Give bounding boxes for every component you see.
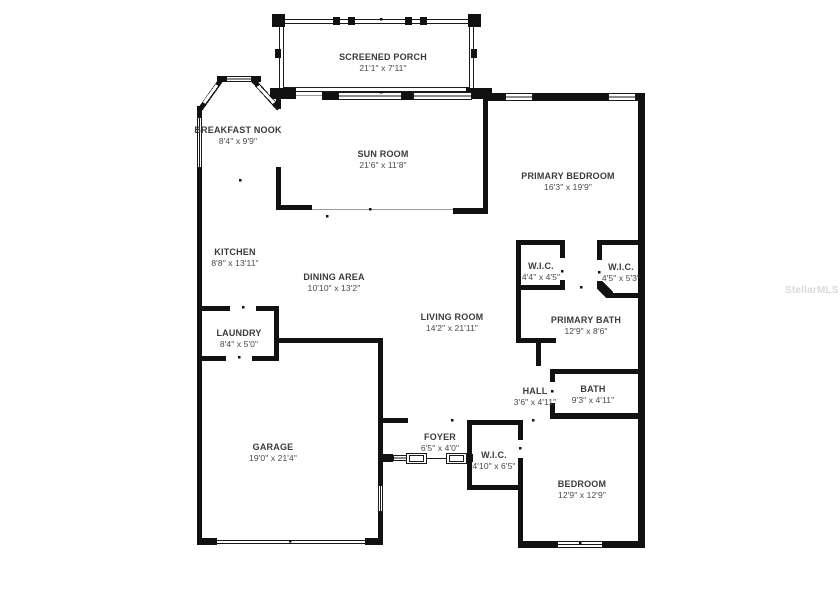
room-label-primary-bath: PRIMARY BATH 12'9" x 8'6" bbox=[551, 315, 621, 336]
room-dims: 21'1" x 7'11" bbox=[339, 63, 427, 74]
room-dims: 16'3" x 19'9" bbox=[521, 182, 615, 193]
entry-door-symbols bbox=[407, 454, 467, 464]
room-label-living-room: LIVING ROOM 14'2" x 21'11" bbox=[421, 312, 484, 333]
room-dims: 12'9" x 12'9" bbox=[558, 490, 606, 501]
room-label-hall: HALL 3'6" x 4'11" bbox=[514, 386, 556, 407]
room-dims: 14'2" x 21'11" bbox=[421, 323, 484, 334]
room-name: BATH bbox=[572, 384, 614, 395]
room-name: BREAKFAST NOOK bbox=[194, 125, 281, 136]
room-name: DINING AREA bbox=[303, 272, 364, 283]
room-name: LAUNDRY bbox=[216, 328, 261, 339]
room-label-laundry: LAUNDRY 8'4" x 5'0" bbox=[216, 328, 261, 349]
room-label-foyer: FOYER 6'5" x 4'0" bbox=[421, 432, 459, 453]
room-dims: 6'5" x 4'0" bbox=[421, 443, 459, 454]
room-dims: 19'0" x 21'4" bbox=[249, 453, 297, 464]
room-dims: 4'5" x 5'3" bbox=[602, 273, 640, 284]
room-dims: 8'8" x 13'11" bbox=[211, 258, 258, 269]
room-name: W.I.C. bbox=[602, 262, 640, 273]
room-label-wic-primary-1: W.I.C. 4'4" x 4'5" bbox=[522, 261, 560, 282]
room-label-kitchen: KITCHEN 8'8" x 13'11" bbox=[211, 247, 258, 268]
room-name: PRIMARY BEDROOM bbox=[521, 171, 615, 182]
windows bbox=[198, 77, 637, 548]
room-label-primary-bedroom: PRIMARY BEDROOM 16'3" x 19'9" bbox=[521, 171, 615, 192]
room-dims: 10'10" x 13'2" bbox=[303, 283, 364, 294]
room-name: LIVING ROOM bbox=[421, 312, 484, 323]
room-dims: 12'9" x 8'6" bbox=[551, 326, 621, 337]
room-label-dining-area: DINING AREA 10'10" x 13'2" bbox=[303, 272, 364, 293]
floorplan-page: SCREENED PORCH 21'1" x 7'11" BREAKFAST N… bbox=[0, 0, 840, 591]
room-dims: 4'4" x 4'5" bbox=[522, 272, 560, 283]
room-dims: 4'10" x 6'5" bbox=[472, 461, 515, 472]
room-label-screened-porch: SCREENED PORCH 21'1" x 7'11" bbox=[339, 52, 427, 73]
room-label-bedroom: BEDROOM 12'9" x 12'9" bbox=[558, 479, 606, 500]
room-dims: 8'4" x 5'0" bbox=[216, 339, 261, 350]
room-label-breakfast-nook: BREAKFAST NOOK 8'4" x 9'9" bbox=[194, 125, 281, 146]
watermark-text: StellarMLS bbox=[785, 285, 839, 296]
room-dims: 21'6" x 11'8" bbox=[357, 160, 408, 171]
room-name: PRIMARY BATH bbox=[551, 315, 621, 326]
room-label-garage: GARAGE 19'0" x 21'4" bbox=[249, 442, 297, 463]
room-label-wic-primary-2: W.I.C. 4'5" x 5'3" bbox=[602, 262, 640, 283]
floorplan-walls bbox=[0, 0, 840, 591]
room-name: W.I.C. bbox=[472, 450, 515, 461]
room-label-wic-bedroom: W.I.C. 4'10" x 6'5" bbox=[472, 450, 515, 471]
room-name: KITCHEN bbox=[211, 247, 258, 258]
room-dims: 9'3" x 4'11" bbox=[572, 395, 614, 406]
room-name: W.I.C. bbox=[522, 261, 560, 272]
room-name: GARAGE bbox=[249, 442, 297, 453]
room-name: HALL bbox=[514, 386, 556, 397]
room-name: SUN ROOM bbox=[357, 149, 408, 160]
room-label-sun-room: SUN ROOM 21'6" x 11'8" bbox=[357, 149, 408, 170]
room-name: FOYER bbox=[421, 432, 459, 443]
room-name: SCREENED PORCH bbox=[339, 52, 427, 63]
room-dims: 3'6" x 4'11" bbox=[514, 397, 556, 408]
room-label-bath: BATH 9'3" x 4'11" bbox=[572, 384, 614, 405]
room-dims: 8'4" x 9'9" bbox=[194, 136, 281, 147]
bay-window-angles bbox=[199, 80, 279, 111]
room-name: BEDROOM bbox=[558, 479, 606, 490]
